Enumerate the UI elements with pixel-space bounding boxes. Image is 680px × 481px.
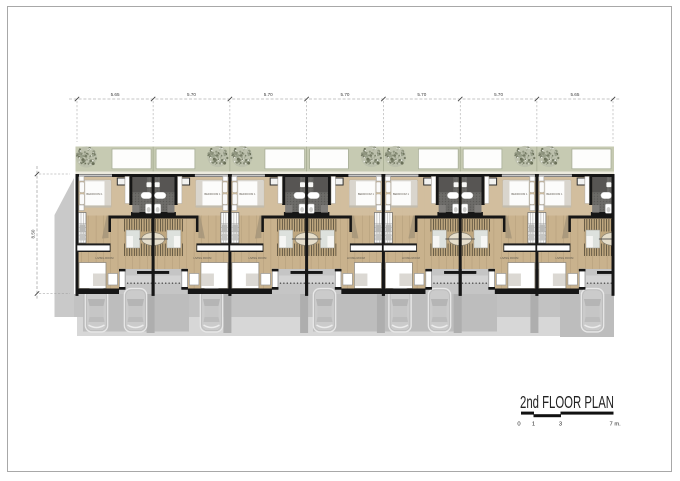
svg-text:1: 1 bbox=[532, 422, 535, 428]
svg-text:2nd FLOOR PLAN: 2nd FLOOR PLAN bbox=[520, 392, 614, 412]
svg-text:LIVING ROOM: LIVING ROOM bbox=[500, 256, 519, 260]
svg-text:BEDROOM 1: BEDROOM 1 bbox=[86, 192, 103, 196]
svg-text:BEDROOM 1: BEDROOM 1 bbox=[546, 192, 563, 196]
svg-text:LIVING ROOM: LIVING ROOM bbox=[347, 256, 366, 260]
svg-text:LIVING ROOM: LIVING ROOM bbox=[555, 256, 574, 260]
svg-text:5.70: 5.70 bbox=[494, 92, 503, 97]
svg-text:BEDROOM 1: BEDROOM 1 bbox=[204, 192, 221, 196]
svg-text:5.65: 5.65 bbox=[111, 92, 120, 97]
svg-text:0: 0 bbox=[517, 422, 520, 428]
svg-text:3: 3 bbox=[559, 422, 562, 428]
svg-text:5.65: 5.65 bbox=[570, 92, 579, 97]
svg-text:LIVING ROOM: LIVING ROOM bbox=[402, 256, 421, 260]
svg-text:BEDROOM 1: BEDROOM 1 bbox=[358, 192, 375, 196]
svg-text:LIVING ROOM: LIVING ROOM bbox=[96, 256, 115, 260]
svg-text:BEDROOM 1: BEDROOM 1 bbox=[511, 192, 528, 196]
svg-text:5.70: 5.70 bbox=[187, 92, 196, 97]
svg-text:LIVING ROOM: LIVING ROOM bbox=[248, 256, 267, 260]
svg-text:8.50: 8.50 bbox=[31, 229, 36, 238]
svg-text:7 m.: 7 m. bbox=[610, 422, 622, 428]
svg-text:BEDROOM 1: BEDROOM 1 bbox=[393, 192, 410, 196]
svg-text:LIVING ROOM: LIVING ROOM bbox=[193, 256, 212, 260]
svg-text:BEDROOM 1: BEDROOM 1 bbox=[239, 192, 256, 196]
svg-text:5.70: 5.70 bbox=[341, 92, 350, 97]
svg-text:5.70: 5.70 bbox=[417, 92, 426, 97]
svg-text:5.70: 5.70 bbox=[264, 92, 273, 97]
